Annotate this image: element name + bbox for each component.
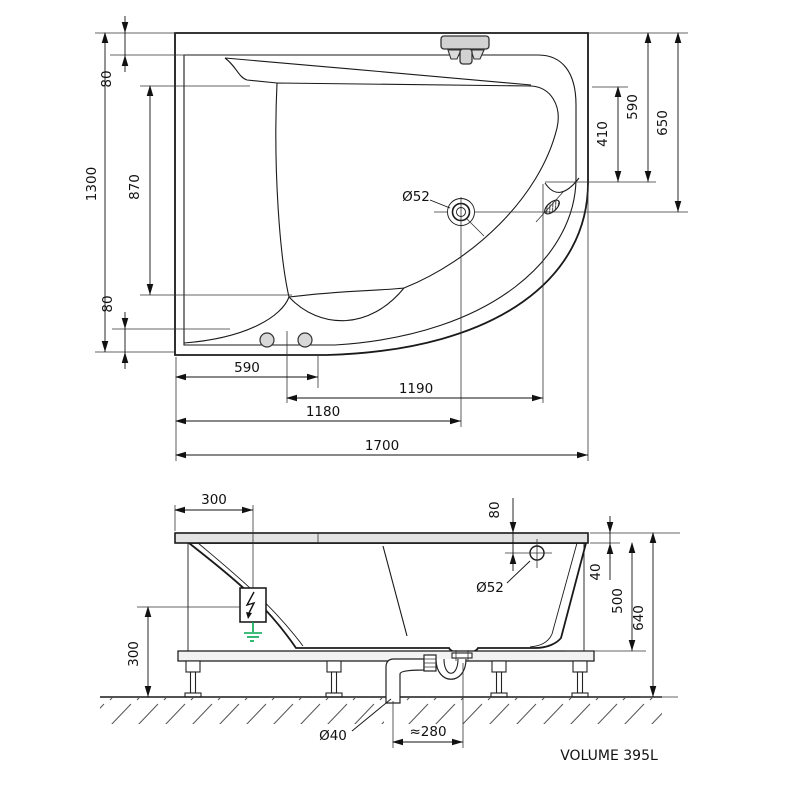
waste-diameter-label: Ø40: [319, 728, 347, 744]
drain-diameter-label: Ø52: [402, 189, 430, 205]
side-view: 300 80 Ø52 40 500 640 300 Ø40 ≈280: [100, 492, 680, 748]
dim-trap-offset: ≈280: [409, 724, 446, 740]
tub-inner-rim: [184, 55, 576, 345]
dim-corner-right: 650: [655, 110, 671, 136]
volume-label: VOLUME 395L: [560, 748, 658, 764]
overflow-diameter-label: Ø52: [476, 580, 504, 596]
dim-inner-right: 590: [625, 94, 641, 120]
dim-overall-length: 1700: [365, 438, 399, 454]
dim-rim-top: 80: [99, 70, 115, 87]
seat-front-curve: [289, 288, 404, 321]
dim-inner-depth: 500: [610, 588, 626, 614]
deck-hole-right: [298, 333, 312, 347]
dim-seat-right: 410: [595, 121, 611, 147]
faucet: [441, 36, 489, 64]
dim-overall-width: 1300: [84, 167, 100, 201]
dim-rim-height: 40: [588, 563, 604, 580]
corner-bench-arc: [545, 178, 579, 192]
tub-rim-bar: [175, 533, 588, 543]
ground-symbol-icon: [244, 622, 262, 641]
drain-top: [434, 197, 484, 236]
electrical-connection-box: [240, 505, 266, 622]
dim-basin-length: 870: [127, 174, 143, 200]
dim-apron-bottom: 590: [234, 360, 260, 376]
technical-drawing-bathtub: 1300 80 870 80 590 410 650 Ø52 590 1190 …: [0, 0, 800, 800]
dim-box-from-floor: 300: [126, 641, 142, 667]
dim-rim-bottom: 80: [100, 295, 116, 312]
overflow-hole: [542, 198, 561, 217]
backrest-line: [225, 58, 531, 85]
top-view: 1300 80 870 80 590 410 650 Ø52 590 1190 …: [84, 16, 688, 461]
dim-drain-from-grip: 1190: [399, 381, 433, 397]
deck-hole-left: [260, 333, 274, 347]
overflow-centerline: [536, 191, 564, 222]
dim-drain-from-left: 1180: [306, 404, 340, 420]
floor-hatch: [100, 698, 662, 724]
dim-overflow-from-top: 80: [487, 501, 503, 518]
drawing-svg: 1300 80 870 80 590 410 650 Ø52 590 1190 …: [0, 0, 800, 800]
dim-box-from-edge: 300: [201, 492, 227, 508]
mid-wall-line: [383, 546, 407, 636]
dim-overall-height: 640: [631, 605, 647, 631]
top-view-dimension-lines: [105, 16, 678, 455]
